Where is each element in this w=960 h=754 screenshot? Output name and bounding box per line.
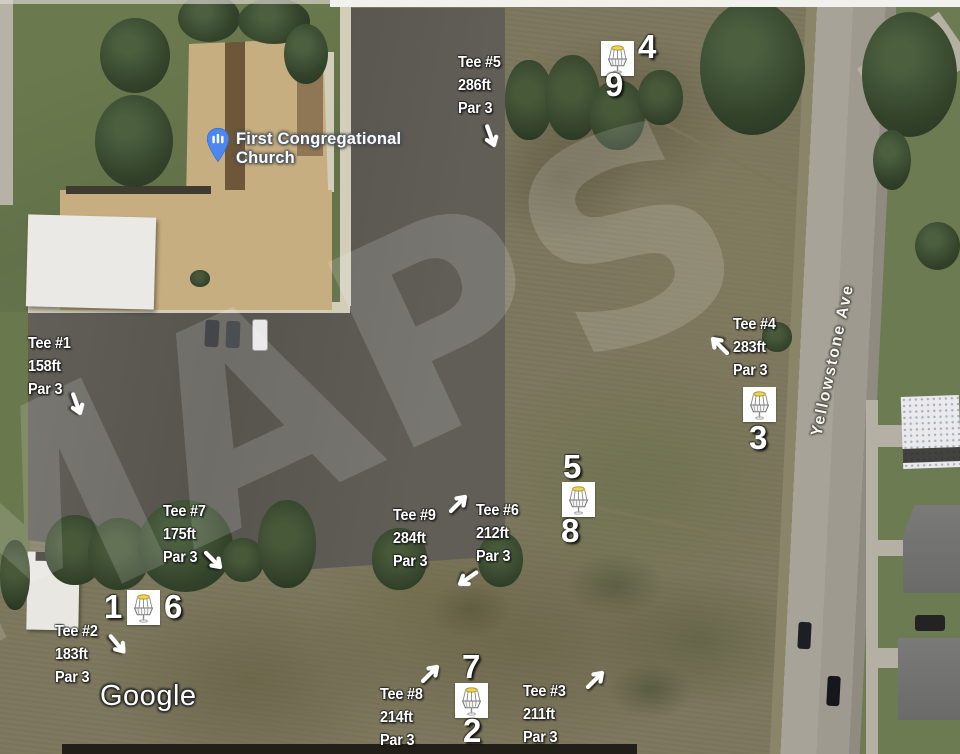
house-roof [903,505,960,593]
bush [258,500,316,588]
west-sidewalk [0,0,13,205]
parked-car [797,622,811,650]
place-pin-icon [205,127,231,164]
tree [138,500,233,592]
west-lawn-strip [0,312,30,562]
bush [590,80,645,150]
tree [95,95,173,187]
photo-edge-bar [62,744,637,754]
tree [873,130,911,190]
poi-label-line2: Church [236,149,401,168]
east-sidewalk [866,400,878,754]
tree-cluster [700,0,805,135]
white-textured-roof [901,395,960,469]
church-poi-marker[interactable] [205,127,231,169]
satellite-map-canvas[interactable]: MAPS Google First Congregational Church … [0,0,960,754]
roof-shadow [66,186,211,194]
bush [190,270,210,287]
bush [0,540,30,610]
tree-cluster [862,12,957,137]
bush [762,322,792,352]
parked-car [204,320,219,348]
poi-label-line1: First Congregational [236,130,401,149]
bush [372,528,427,590]
parked-car [826,676,841,707]
tree [284,24,328,84]
photo-edge-strip [0,0,330,4]
roof-panels [903,447,960,463]
parked-car [915,615,945,631]
tree [915,222,960,270]
bush [478,532,523,587]
bush [638,70,683,125]
parked-van [252,319,268,351]
photo-edge-strip [330,0,960,7]
parked-car [226,321,241,348]
house-roof [898,638,960,720]
white-flat-roof [26,214,156,309]
church-poi-label: First Congregational Church [236,130,401,168]
google-watermark: Google [100,680,197,713]
tree [100,18,170,93]
